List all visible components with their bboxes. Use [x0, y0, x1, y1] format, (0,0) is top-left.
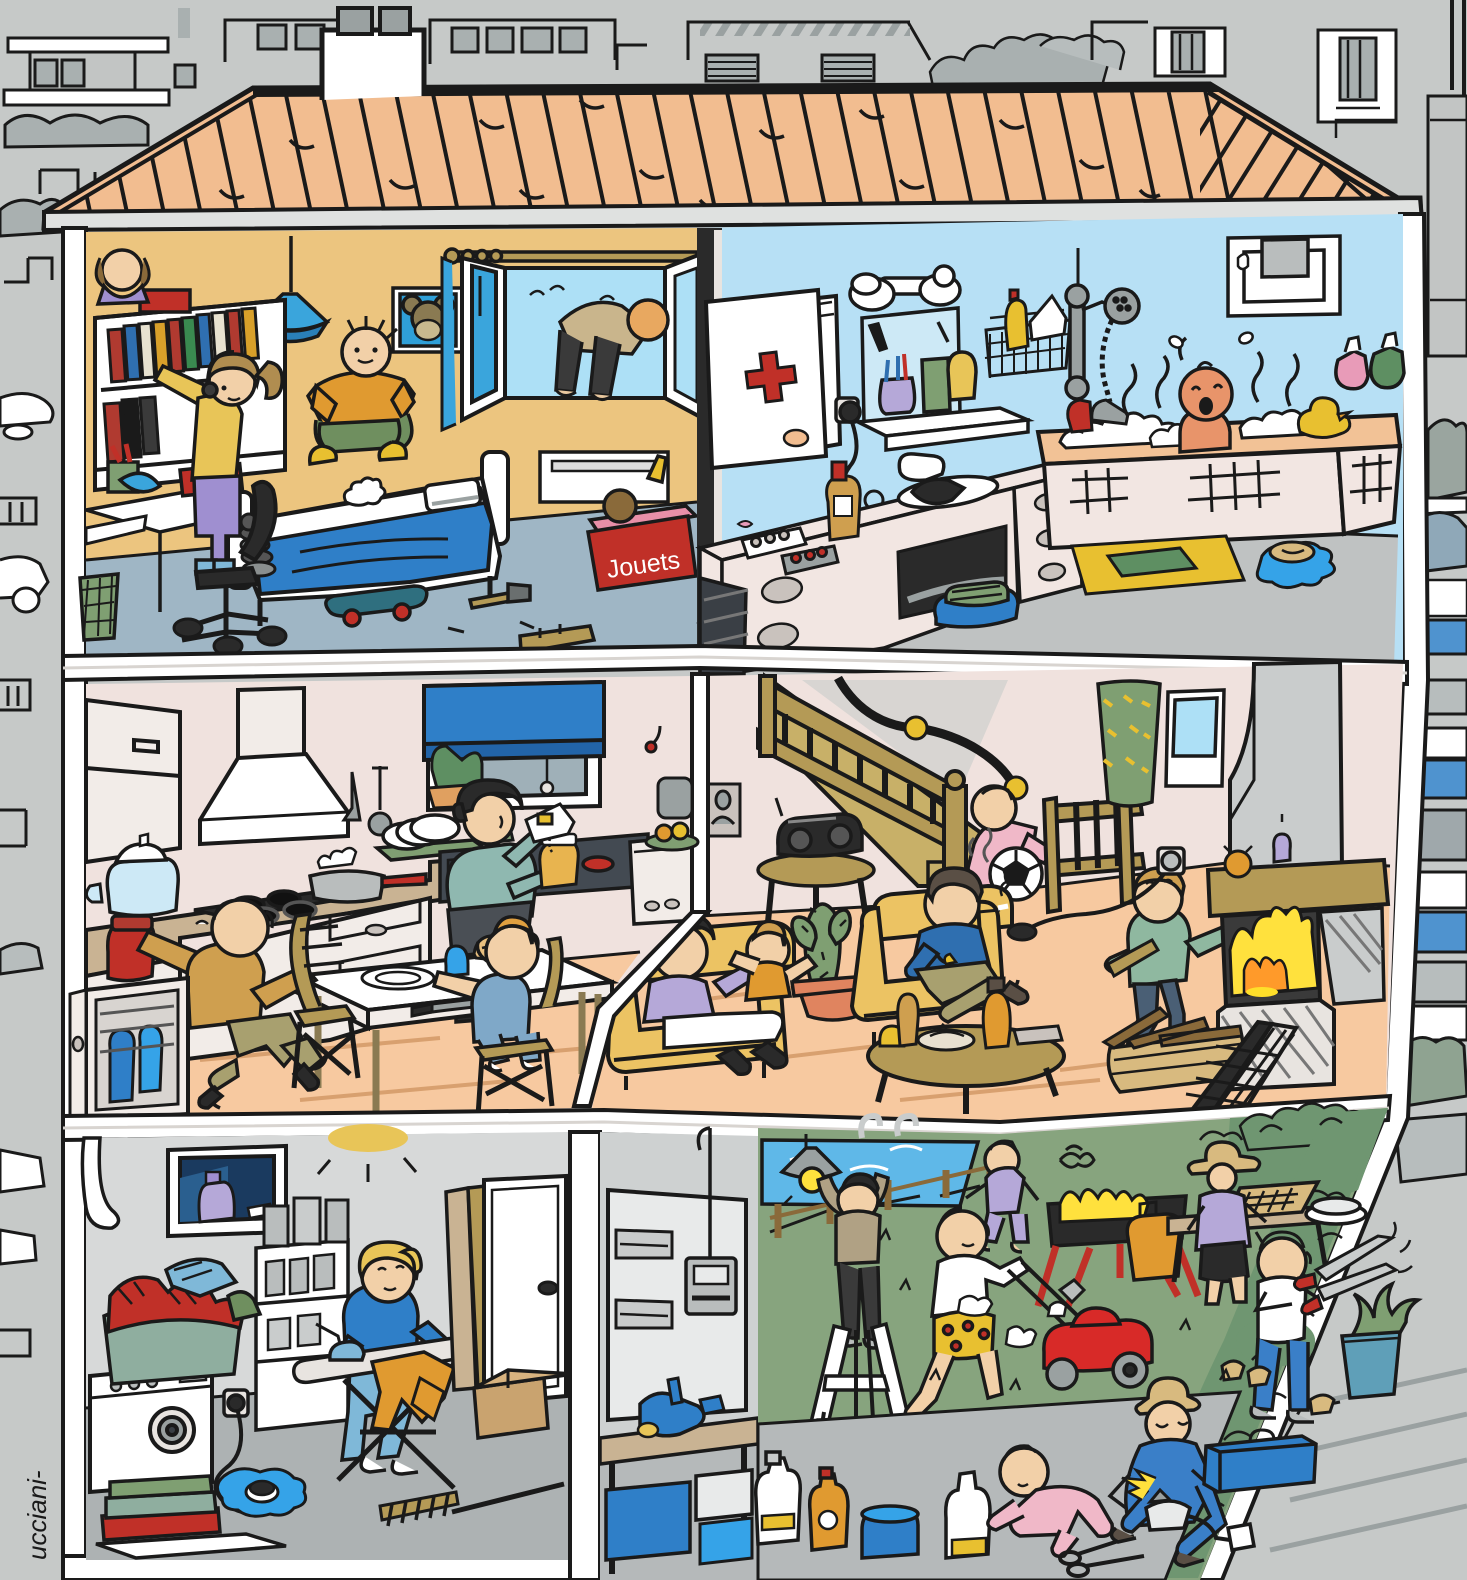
svg-text:ucciani-: ucciani- — [22, 1470, 52, 1560]
